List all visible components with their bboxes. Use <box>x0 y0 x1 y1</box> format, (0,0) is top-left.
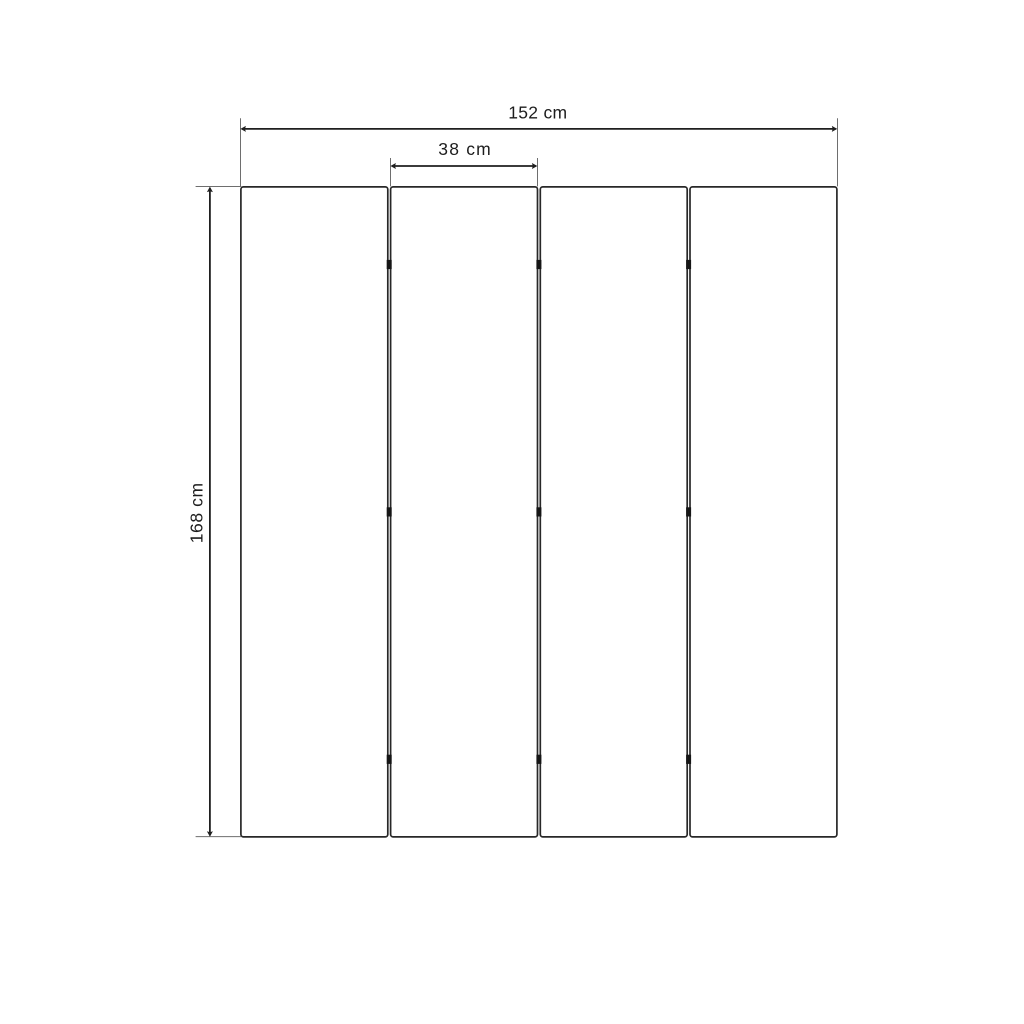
svg-text:152 cm: 152 cm <box>508 103 567 123</box>
svg-text:168 cm: 168 cm <box>187 482 207 543</box>
svg-text:38 cm: 38 cm <box>438 139 492 159</box>
